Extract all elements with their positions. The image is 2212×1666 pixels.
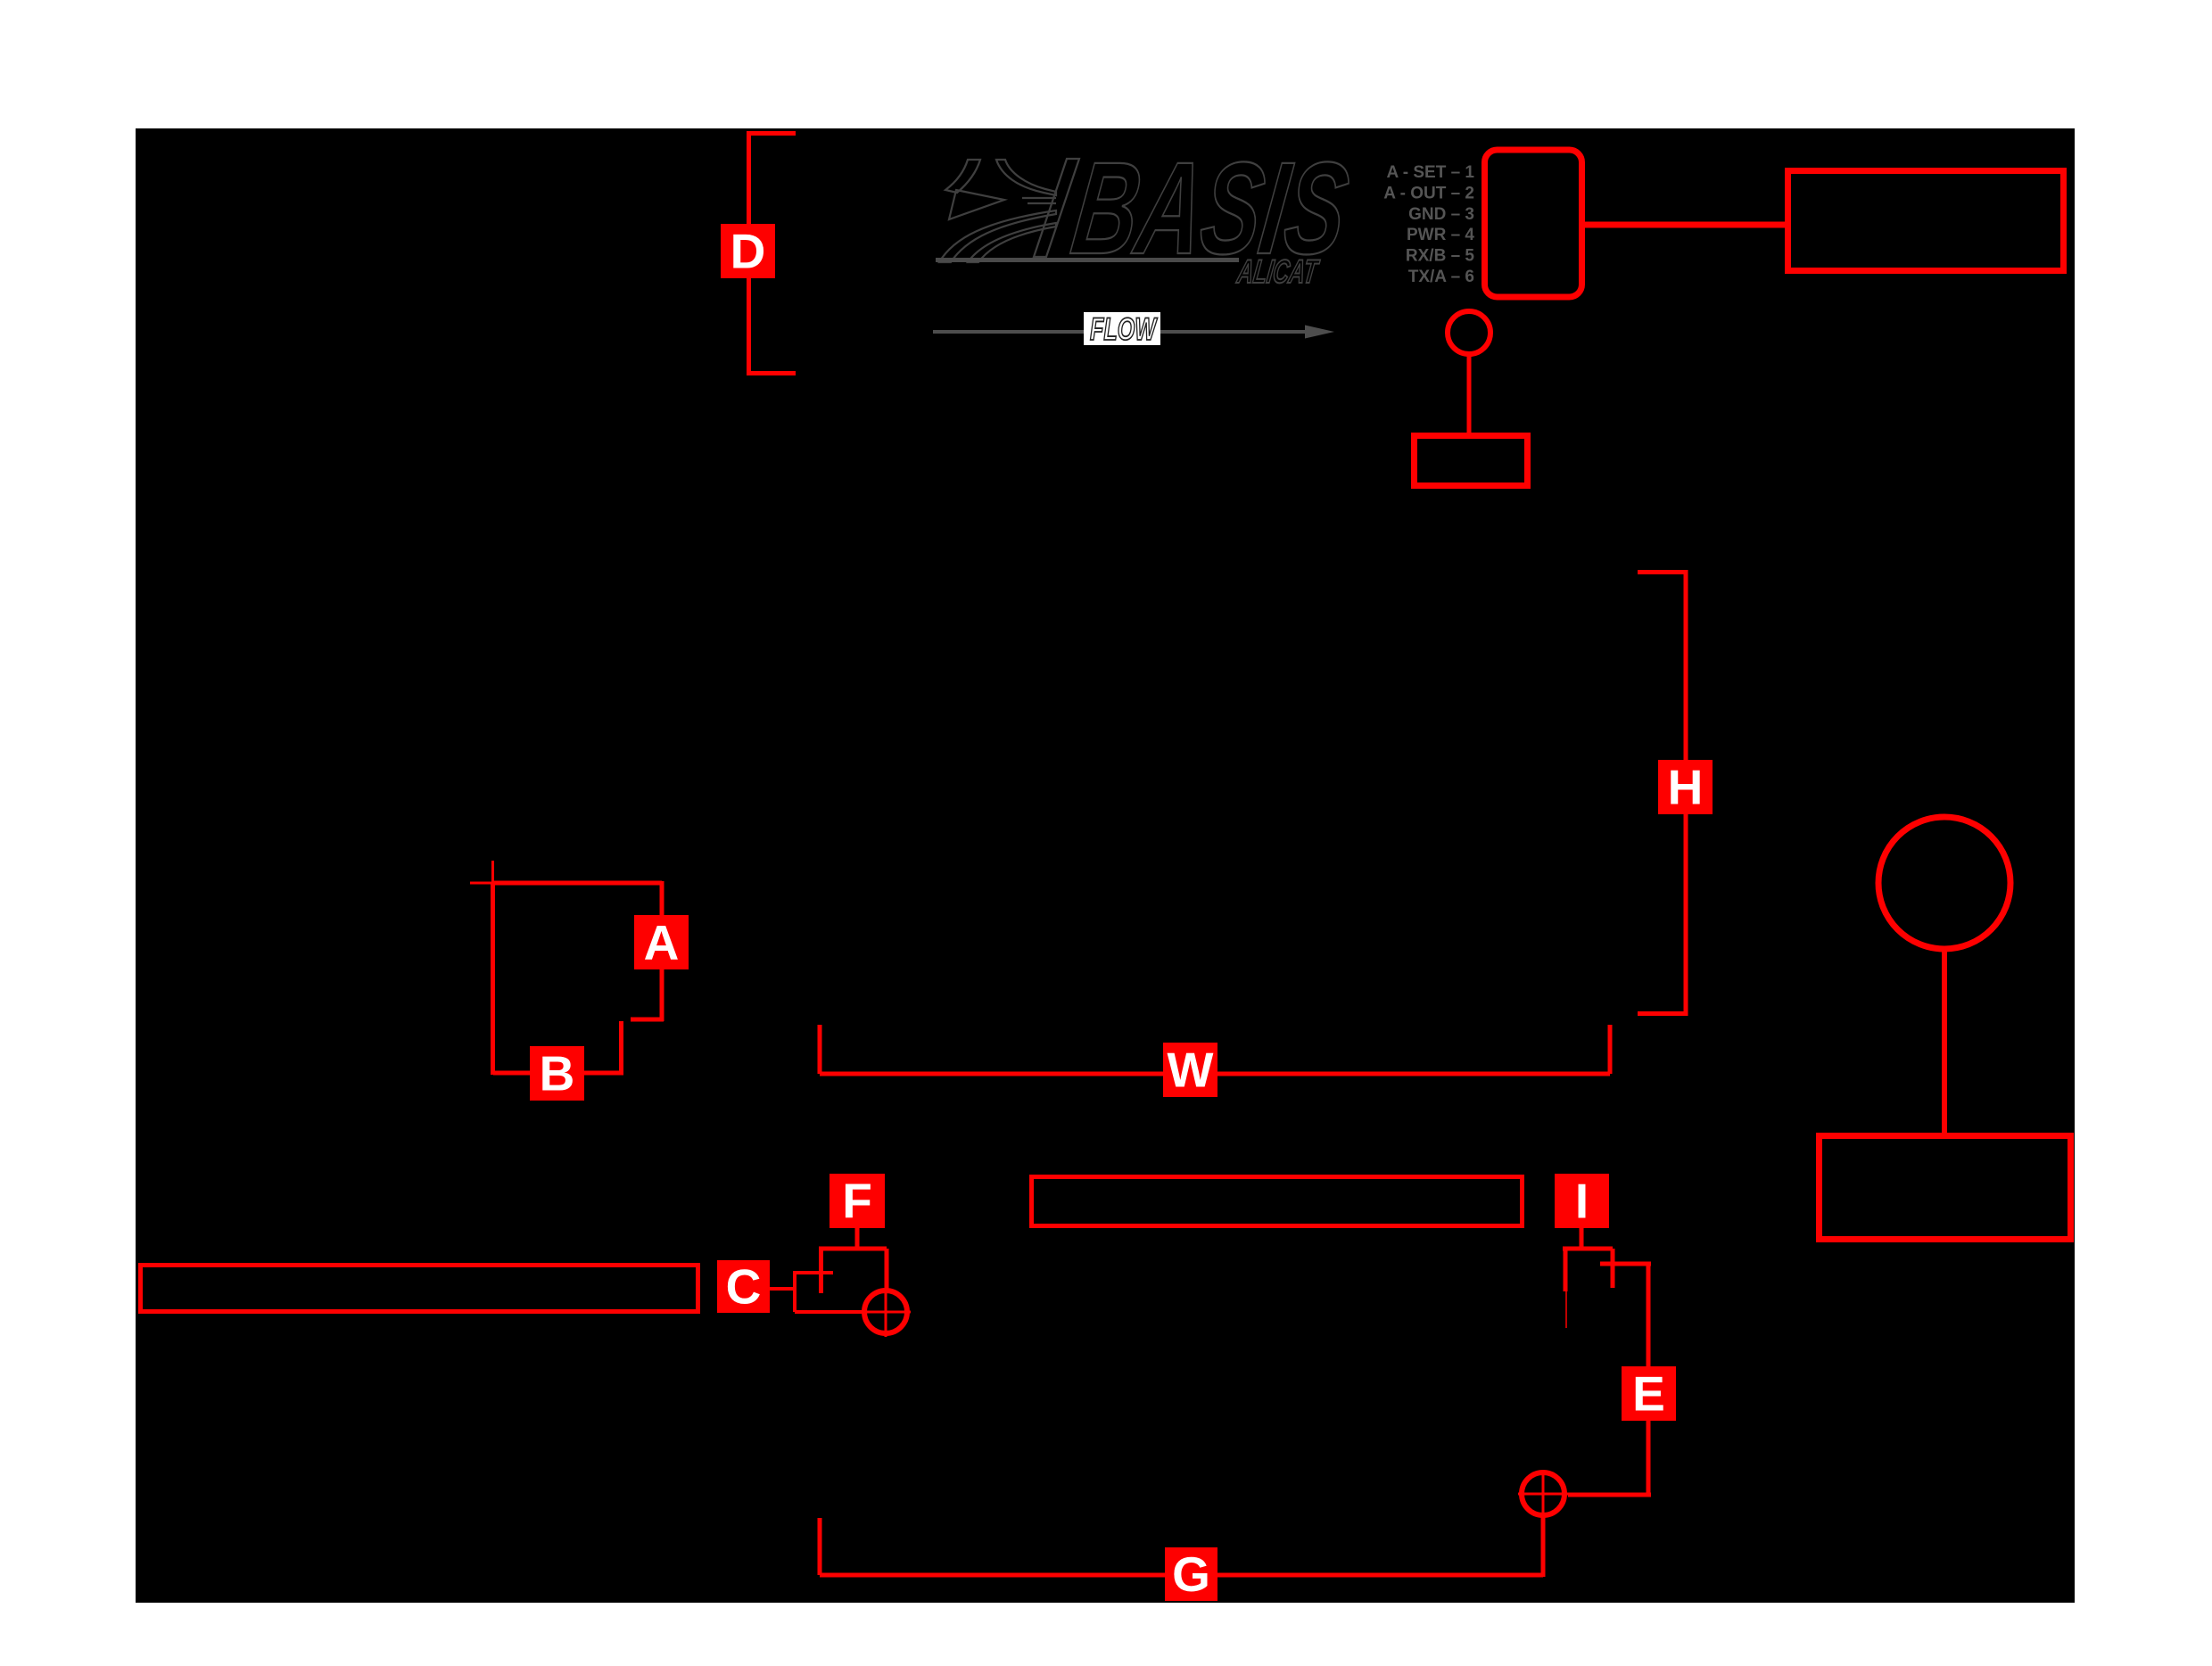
svg-text:B: B <box>540 1046 575 1101</box>
svg-text:G: G <box>1172 1546 1210 1602</box>
svg-text:F: F <box>842 1174 872 1229</box>
svg-text:ALICAT: ALICAT <box>1234 252 1322 290</box>
svg-text:D: D <box>730 224 766 279</box>
svg-text:RX/B – 5: RX/B – 5 <box>1406 247 1475 266</box>
svg-text:GND – 3: GND – 3 <box>1408 205 1474 224</box>
svg-text:A - OUT – 2: A - OUT – 2 <box>1383 184 1474 202</box>
svg-text:H: H <box>1668 760 1704 815</box>
svg-text:E: E <box>1632 1366 1665 1422</box>
svg-text:I: I <box>1575 1174 1589 1229</box>
svg-text:W: W <box>1168 1043 1214 1098</box>
svg-text:TX/A – 6: TX/A – 6 <box>1408 268 1474 286</box>
svg-text:C: C <box>726 1259 762 1315</box>
svg-text:A - SET – 1: A - SET – 1 <box>1386 163 1474 182</box>
svg-text:PWR – 4: PWR – 4 <box>1407 226 1474 244</box>
svg-text:A: A <box>644 915 680 970</box>
svg-text:FLOW: FLOW <box>1090 312 1158 347</box>
